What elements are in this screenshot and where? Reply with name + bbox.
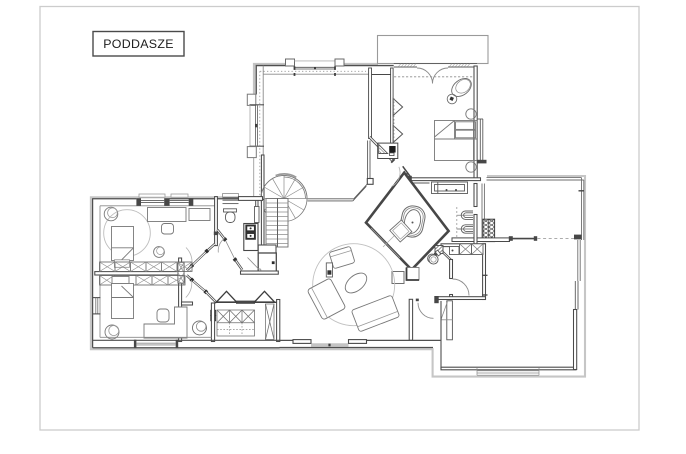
svg-text:PODDASZE: PODDASZE [103, 37, 174, 51]
